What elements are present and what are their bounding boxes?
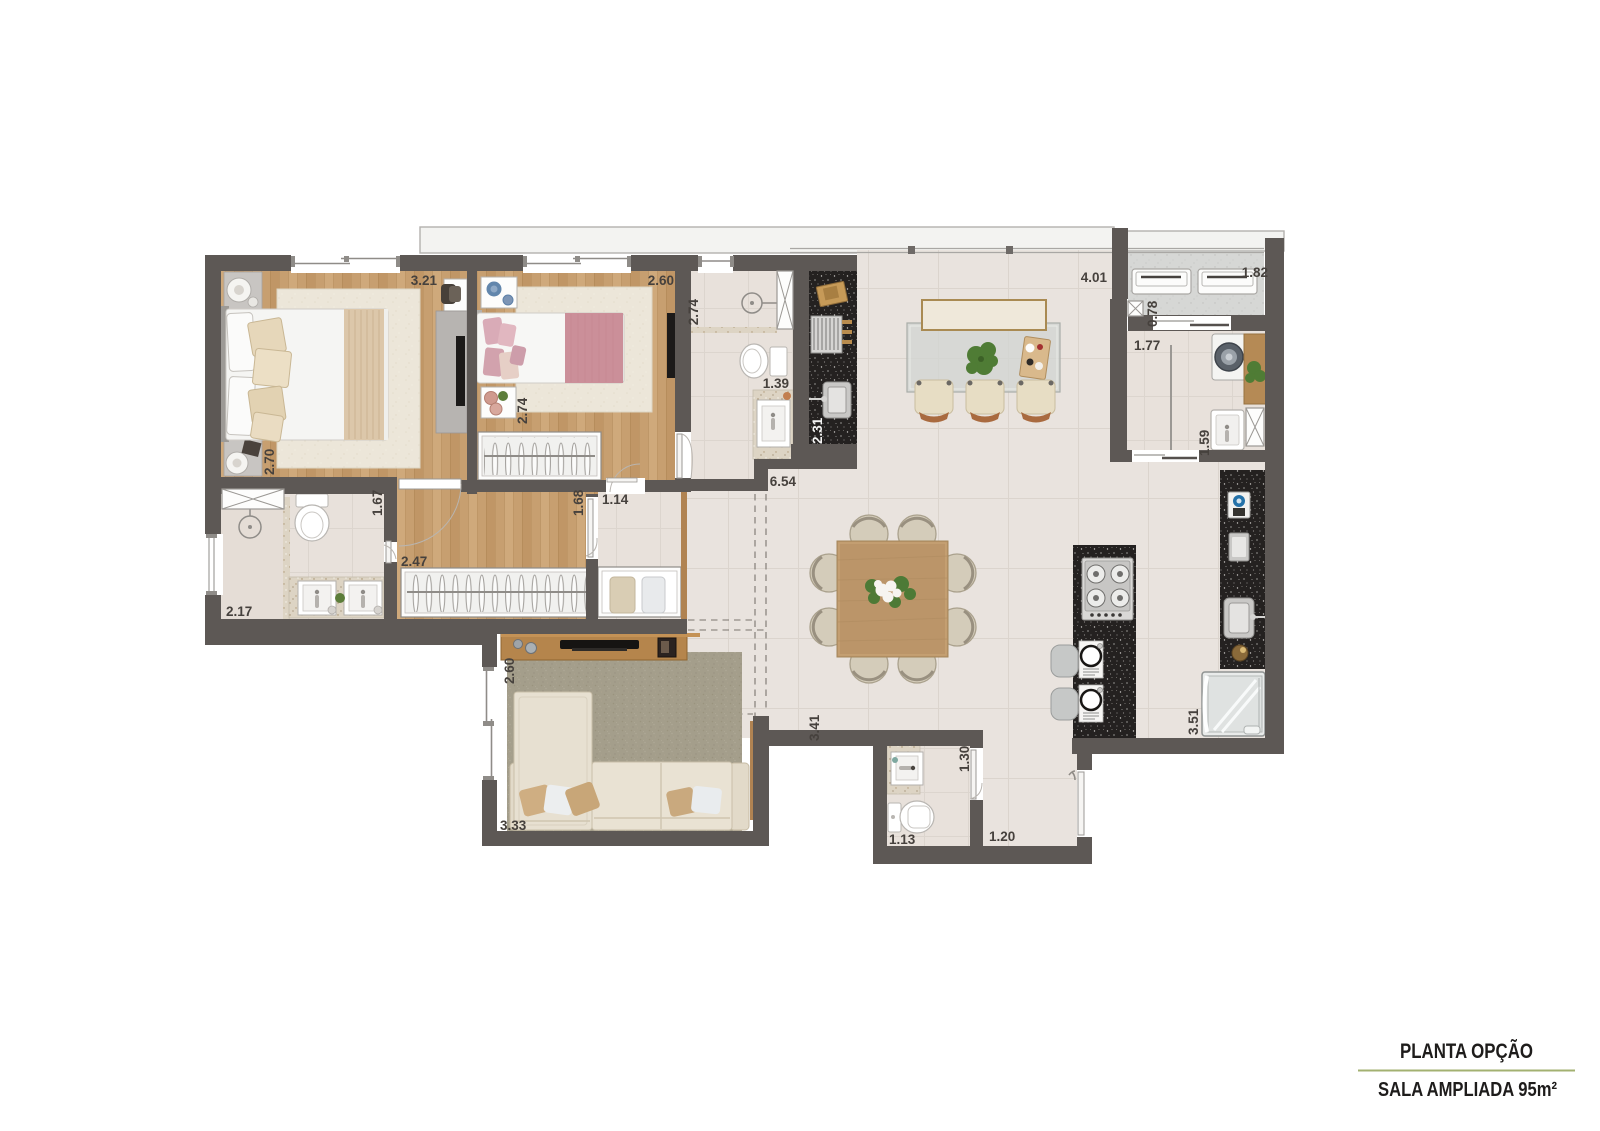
svg-text:1.59: 1.59 (1197, 430, 1212, 456)
svg-text:1.39: 1.39 (763, 376, 789, 391)
svg-text:4.01: 4.01 (1081, 270, 1108, 285)
svg-text:1.77: 1.77 (1134, 338, 1160, 353)
svg-text:3.33: 3.33 (500, 818, 527, 833)
svg-text:1.20: 1.20 (989, 829, 1015, 844)
svg-text:1.82: 1.82 (1242, 265, 1268, 280)
svg-text:SALA AMPLIADA 95m²: SALA AMPLIADA 95m² (1378, 1078, 1557, 1101)
svg-text:1.13: 1.13 (889, 832, 916, 847)
svg-text:6.54: 6.54 (770, 474, 797, 489)
svg-text:2.74: 2.74 (686, 299, 701, 326)
svg-text:2.74: 2.74 (515, 397, 530, 424)
svg-text:1.14: 1.14 (602, 492, 629, 507)
svg-text:1.30: 1.30 (957, 746, 972, 772)
svg-text:PLANTA OPÇÃO: PLANTA OPÇÃO (1400, 1038, 1533, 1063)
svg-text:2.60: 2.60 (502, 658, 517, 684)
svg-text:2.60: 2.60 (648, 273, 674, 288)
svg-text:0.78: 0.78 (1145, 300, 1160, 327)
svg-text:3.21: 3.21 (411, 273, 438, 288)
svg-text:2.47: 2.47 (401, 554, 427, 569)
svg-text:2.17: 2.17 (226, 604, 252, 619)
svg-text:2.70: 2.70 (262, 449, 277, 475)
svg-text:3.51: 3.51 (1186, 708, 1201, 735)
svg-text:2.31: 2.31 (810, 417, 825, 444)
svg-text:1.67: 1.67 (370, 490, 385, 516)
svg-text:3.41: 3.41 (807, 714, 822, 741)
svg-text:1.68: 1.68 (571, 489, 586, 516)
